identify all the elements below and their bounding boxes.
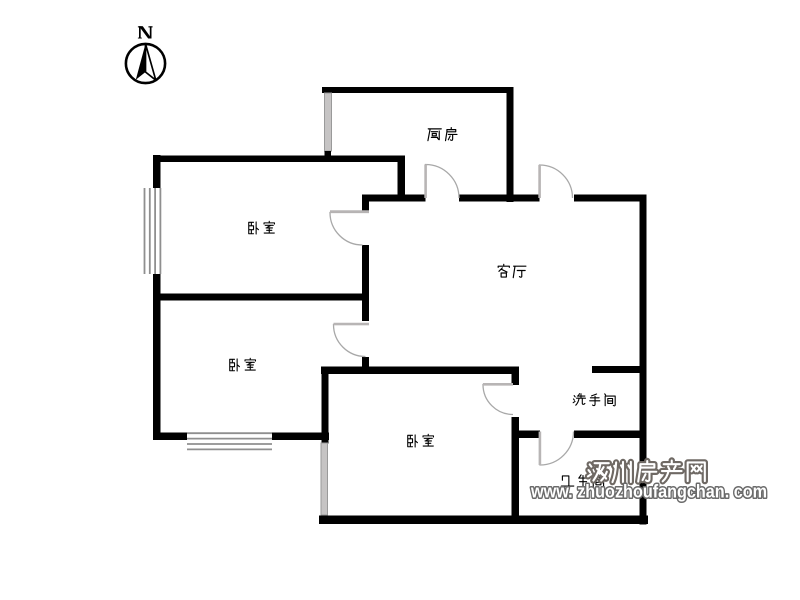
svg-text:www. zhuozhoufangchan. com: www. zhuozhoufangchan. com	[530, 481, 767, 502]
